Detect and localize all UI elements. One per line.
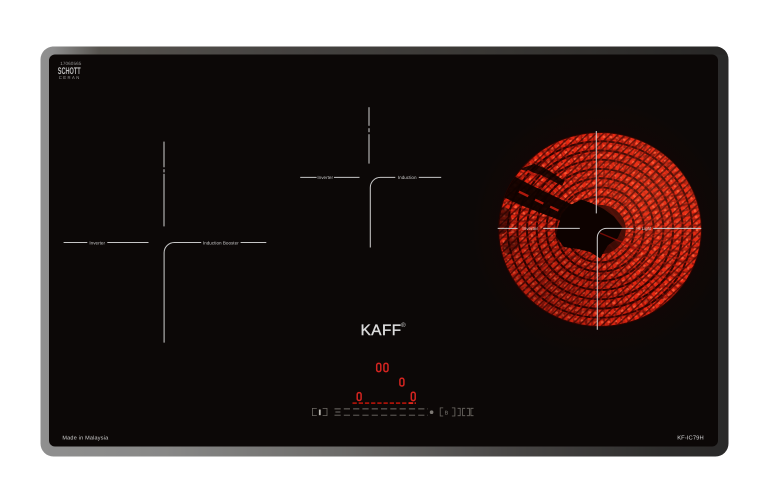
svg-text:Inverter: Inverter <box>522 226 538 231</box>
svg-text:Hi Light: Hi Light <box>636 226 652 231</box>
svg-text:Inverter: Inverter <box>317 175 333 180</box>
svg-text:Induction Booster: Induction Booster <box>203 240 239 245</box>
svg-text:KAFF: KAFF <box>361 322 402 339</box>
svg-text:KF-IC79H: KF-IC79H <box>677 434 704 441</box>
svg-text:CERAN: CERAN <box>59 75 81 80</box>
svg-text:B: B <box>445 411 449 417</box>
svg-text:Induction: Induction <box>398 175 417 180</box>
svg-text:®: ® <box>401 322 406 329</box>
svg-text:Inverter: Inverter <box>89 240 105 245</box>
svg-text:Made in Malaysia: Made in Malaysia <box>62 435 109 441</box>
